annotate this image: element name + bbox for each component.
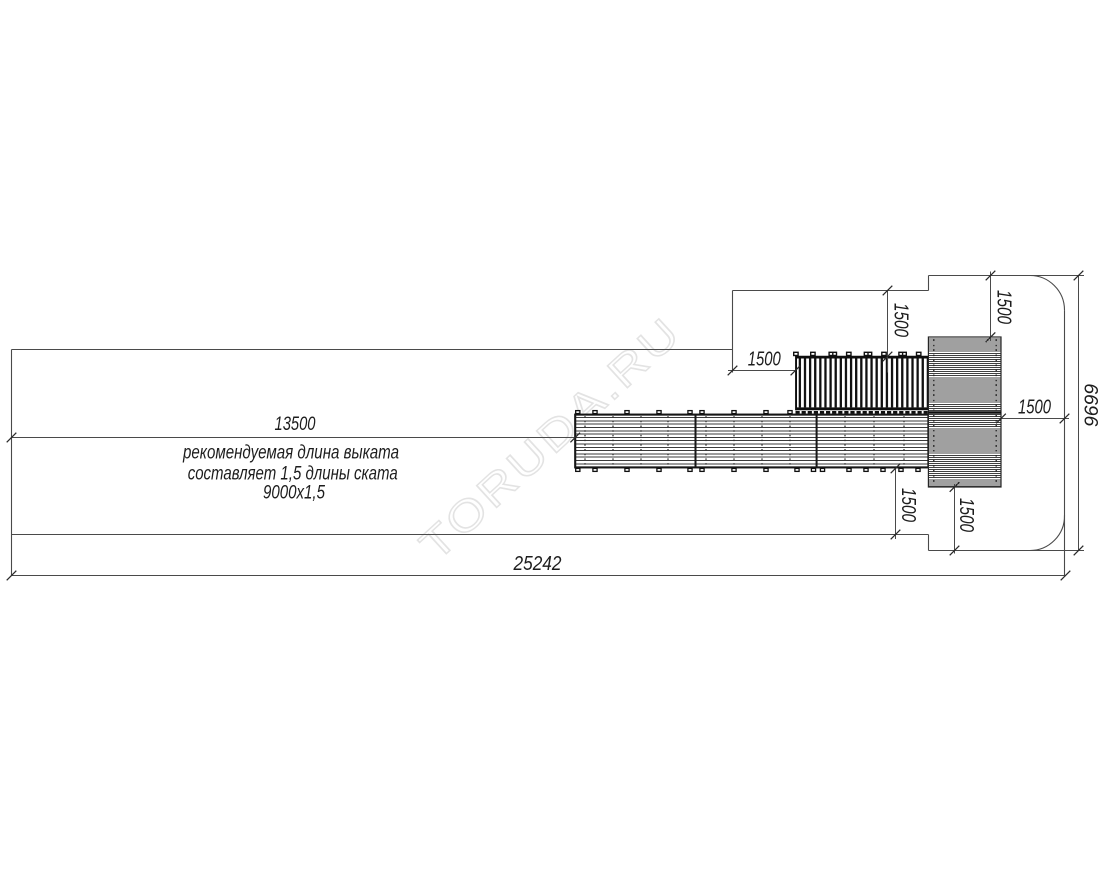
svg-text:9699: 9699 — [1081, 384, 1103, 427]
svg-text:1500: 1500 — [897, 488, 919, 522]
svg-text:1500: 1500 — [1018, 396, 1051, 418]
svg-text:13500: 13500 — [275, 413, 316, 435]
svg-text:1500: 1500 — [993, 290, 1015, 324]
svg-text:25242: 25242 — [513, 552, 562, 575]
svg-text:1500: 1500 — [748, 348, 781, 370]
svg-text:составляет 1,5 длины ската: составляет 1,5 длины ската — [188, 463, 398, 484]
svg-text:1500: 1500 — [889, 303, 911, 337]
svg-text:1500: 1500 — [955, 498, 977, 532]
svg-text:рекомендуемая длина выката: рекомендуемая длина выката — [182, 442, 399, 463]
svg-text:9000х1,5: 9000х1,5 — [263, 483, 325, 504]
